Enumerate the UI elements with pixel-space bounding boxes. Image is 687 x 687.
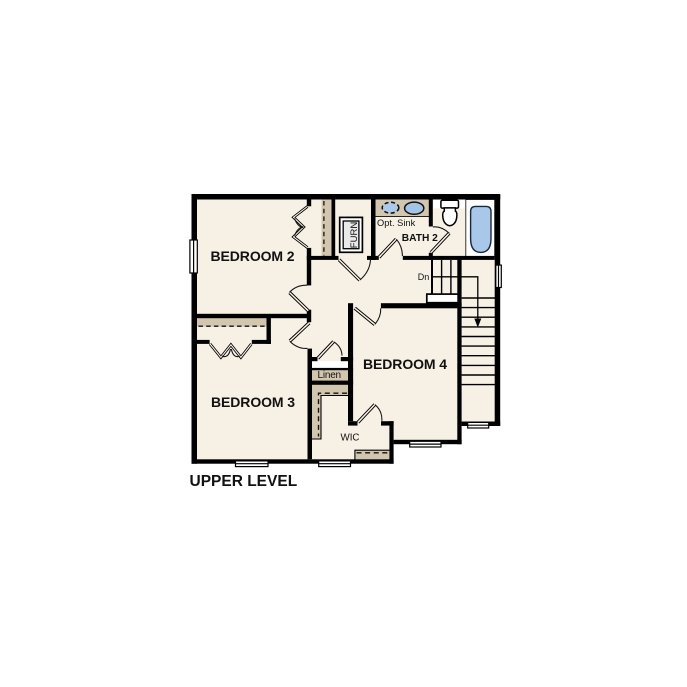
svg-text:BEDROOM 4: BEDROOM 4 bbox=[363, 356, 447, 372]
svg-text:Dn: Dn bbox=[418, 272, 430, 282]
svg-text:BEDROOM 2: BEDROOM 2 bbox=[211, 248, 295, 264]
svg-text:BATH 2: BATH 2 bbox=[402, 233, 438, 244]
svg-text:Linen: Linen bbox=[317, 370, 340, 381]
svg-text:UPPER LEVEL: UPPER LEVEL bbox=[190, 473, 298, 490]
svg-text:WIC: WIC bbox=[340, 432, 359, 443]
svg-text:BEDROOM 3: BEDROOM 3 bbox=[211, 394, 295, 410]
svg-text:Opt. Sink: Opt. Sink bbox=[377, 218, 416, 228]
svg-text:FURN: FURN bbox=[349, 222, 360, 249]
